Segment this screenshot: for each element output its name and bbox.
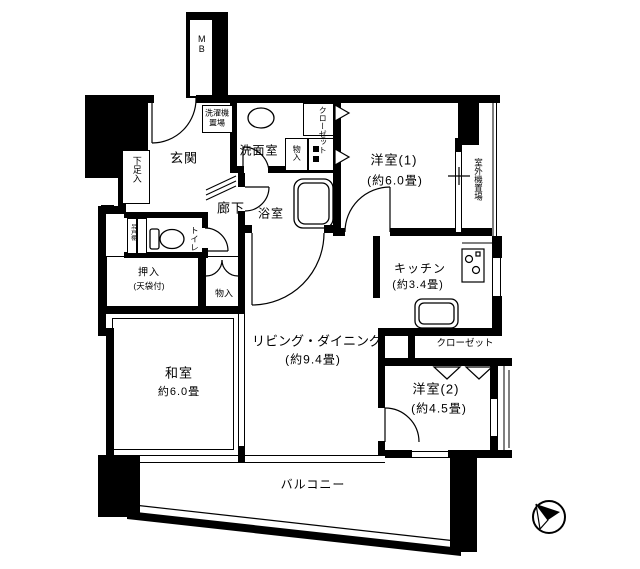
label-western2-name: 洋室(2) — [413, 379, 460, 398]
label-western2-size: (約4.5畳) — [411, 400, 467, 417]
window-washitsu-balcony — [140, 455, 238, 463]
window-living-balcony — [245, 455, 385, 463]
balcony-edge — [127, 505, 461, 556]
label-oshiire: 押入 — [138, 264, 160, 279]
window-west1-right — [455, 152, 462, 232]
entrance-step-lines — [206, 176, 236, 200]
label-oshiire-note: (天袋付) — [133, 280, 164, 292]
window-west2-right — [490, 399, 498, 436]
label-closet-west1: クローゼット — [318, 106, 326, 135]
meter-box-interior — [190, 20, 212, 96]
label-storage-small: 物入 — [292, 145, 300, 161]
label-ac-outdoor: 室外機置場 — [474, 158, 483, 201]
label-closet-west2: クローゼット — [436, 335, 493, 349]
wall — [98, 306, 245, 314]
label-bathroom: 浴室 — [258, 205, 284, 222]
sliding-partition-washitsu — [238, 314, 245, 448]
label-toilet: トイレ — [190, 226, 199, 252]
toilet-cabinet-strip-b — [137, 218, 147, 254]
window-west2-bottom — [412, 451, 448, 458]
wall — [238, 225, 252, 233]
wall — [324, 225, 341, 233]
label-storage-hall: 物入 — [215, 287, 233, 300]
bathtub-icon — [294, 179, 333, 228]
label-laundry-2: 置場 — [209, 118, 225, 129]
toilet-icon — [150, 229, 184, 249]
kitchen-counter-icon — [415, 299, 458, 328]
wall — [408, 336, 415, 360]
label-western1-name: 洋室(1) — [371, 150, 418, 169]
wall — [492, 236, 502, 258]
label-washroom: 洗面室 — [239, 142, 278, 159]
label-washitsu-name: 和室 — [165, 363, 193, 382]
label-kitchen-name: キッチン — [394, 260, 446, 277]
wall — [238, 173, 245, 187]
wall — [148, 95, 154, 103]
label-entrance: 玄関 — [170, 148, 198, 167]
wall — [230, 166, 244, 173]
wall — [238, 446, 245, 463]
wall — [390, 228, 492, 236]
label-washitsu-size: 約6.0畳 — [158, 383, 200, 399]
floor-plan: MB — [0, 0, 640, 569]
north-arrow-icon — [533, 501, 565, 533]
label-western1-size: (約6.0畳) — [367, 172, 423, 189]
wall — [448, 450, 512, 458]
label-living-size: (約9.4畳) — [285, 351, 341, 368]
west2-side-rail — [504, 366, 509, 450]
stove-icon — [462, 249, 484, 282]
sink-icon — [248, 108, 274, 128]
label-shoe-cabinet: 下足入 — [131, 156, 140, 183]
wall — [202, 212, 208, 228]
label-living-name: リビング・ダイニング — [252, 331, 382, 350]
wall-block-bottomright — [450, 458, 477, 552]
label-hallway: 廊下 — [217, 198, 245, 217]
wall — [98, 206, 106, 336]
meter-box-label: MB — [196, 34, 205, 54]
window-kitchen-right — [492, 258, 501, 296]
wall-block-bottomleft — [98, 455, 140, 517]
wall — [378, 358, 512, 366]
wall — [490, 366, 498, 399]
label-hanging-cabinet: 吊戸棚 — [129, 224, 135, 241]
wall — [196, 95, 500, 103]
vent-box — [101, 205, 114, 214]
label-kitchen-size: (約3.4畳) — [392, 276, 444, 292]
wall — [373, 236, 380, 298]
label-balcony: バルコニー — [281, 476, 346, 493]
